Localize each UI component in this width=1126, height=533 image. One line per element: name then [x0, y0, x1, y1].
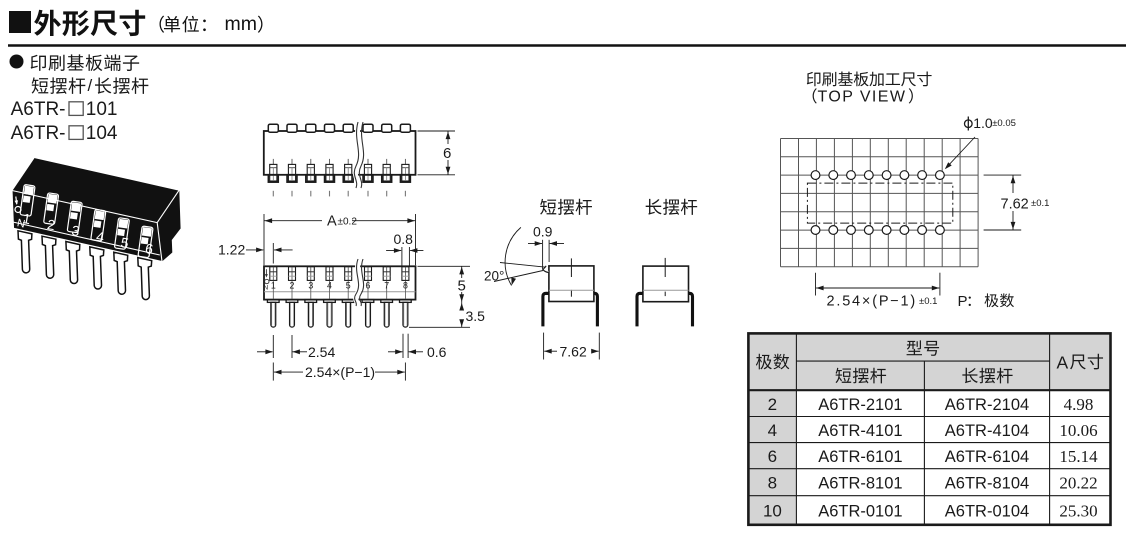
svg-text:101: 101	[86, 99, 118, 120]
svg-text:2: 2	[768, 395, 777, 414]
svg-text:A: A	[1057, 353, 1069, 373]
svg-text:7.62: 7.62	[1001, 197, 1029, 213]
svg-text:A: A	[327, 214, 337, 230]
svg-text:1.22: 1.22	[218, 242, 245, 258]
svg-text:20.22: 20.22	[1059, 474, 1097, 493]
svg-text:8: 8	[768, 474, 777, 493]
svg-text:A6TR-0101: A6TR-0101	[818, 503, 902, 521]
svg-text:TOP VIEW: TOP VIEW	[818, 89, 907, 106]
svg-text:104: 104	[86, 123, 118, 144]
svg-text:3: 3	[308, 281, 313, 291]
svg-text:0.9: 0.9	[533, 224, 553, 240]
svg-text:A6TR-8104: A6TR-8104	[945, 475, 1029, 493]
svg-text:A6TR-2104: A6TR-2104	[945, 396, 1029, 414]
svg-text:mm: mm	[225, 13, 258, 35]
svg-text:±0.05: ±0.05	[992, 118, 1016, 129]
svg-text:1: 1	[271, 281, 276, 291]
svg-text:2.54: 2.54	[308, 344, 335, 360]
svg-text:A6TR-6104: A6TR-6104	[945, 448, 1029, 466]
svg-text:8: 8	[403, 281, 408, 291]
svg-text:0.8: 0.8	[394, 231, 414, 247]
svg-text:A6TR-: A6TR-	[11, 123, 66, 144]
svg-text:0.6: 0.6	[427, 344, 447, 360]
svg-text:4.98: 4.98	[1064, 395, 1094, 414]
svg-text:15.14: 15.14	[1059, 447, 1098, 466]
svg-text:4: 4	[768, 421, 777, 440]
svg-text:2.54×(P−1): 2.54×(P−1)	[827, 294, 918, 310]
svg-text:±0.2: ±0.2	[338, 217, 358, 228]
svg-text:A6TR-8101: A6TR-8101	[818, 475, 902, 493]
svg-text:N: N	[264, 284, 269, 291]
svg-text:5: 5	[346, 281, 351, 291]
svg-text:25.30: 25.30	[1059, 502, 1097, 521]
svg-text:10: 10	[763, 502, 782, 521]
svg-text:7: 7	[384, 281, 389, 291]
svg-text:A6TR-: A6TR-	[11, 99, 66, 120]
svg-text:5: 5	[458, 278, 466, 295]
svg-text:10.06: 10.06	[1059, 421, 1097, 440]
svg-text:6: 6	[366, 281, 371, 291]
svg-text:A6TR-4104: A6TR-4104	[945, 422, 1029, 440]
svg-text:A6TR-2101: A6TR-2101	[818, 396, 902, 414]
svg-text:A6TR-4101: A6TR-4101	[818, 422, 902, 440]
svg-text:1.0: 1.0	[973, 115, 993, 131]
svg-text:±0.1: ±0.1	[919, 296, 937, 307]
svg-text:A6TR-0104: A6TR-0104	[945, 503, 1029, 521]
svg-text:6: 6	[443, 145, 451, 162]
svg-text:2: 2	[290, 281, 295, 291]
svg-text:7.62: 7.62	[560, 344, 587, 360]
svg-text:4: 4	[327, 281, 332, 291]
svg-text:/: /	[88, 76, 93, 95]
svg-text:P: P	[958, 293, 968, 310]
svg-text:2.54×(P−1): 2.54×(P−1)	[305, 364, 375, 380]
svg-text:3.5: 3.5	[466, 308, 486, 324]
svg-text:6: 6	[768, 447, 777, 466]
svg-text:A6TR-6101: A6TR-6101	[818, 448, 902, 466]
svg-text:±0.1: ±0.1	[1031, 198, 1049, 209]
